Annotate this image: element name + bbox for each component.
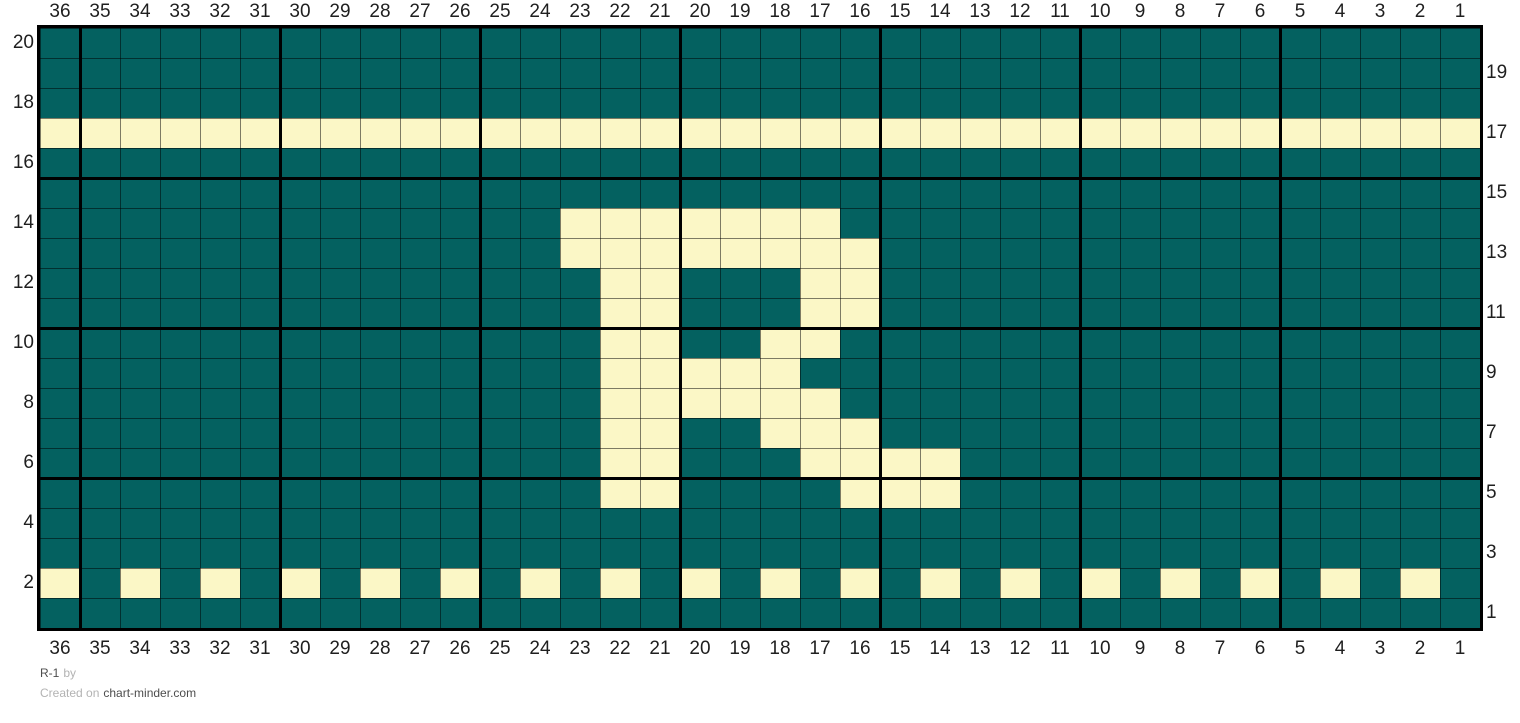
grid-cell-teal[interactable] <box>560 298 600 328</box>
grid-cell-teal[interactable] <box>680 58 720 88</box>
grid-cell-teal[interactable] <box>1400 478 1440 508</box>
grid-cell-teal[interactable] <box>240 478 280 508</box>
grid-cell-teal[interactable] <box>360 148 400 178</box>
grid-cell-teal[interactable] <box>200 508 240 538</box>
grid-cell-teal[interactable] <box>1400 268 1440 298</box>
grid-cell-teal[interactable] <box>40 538 80 568</box>
grid-cell-teal[interactable] <box>1400 208 1440 238</box>
grid-cell-teal[interactable] <box>840 28 880 58</box>
grid-cell-teal[interactable] <box>480 268 520 298</box>
grid-cell-teal[interactable] <box>1040 508 1080 538</box>
grid-cell-cream[interactable] <box>1080 568 1120 598</box>
grid-cell-teal[interactable] <box>200 268 240 298</box>
grid-cell-teal[interactable] <box>440 478 480 508</box>
grid-cell-teal[interactable] <box>1120 298 1160 328</box>
grid-cell-teal[interactable] <box>960 58 1000 88</box>
grid-cell-teal[interactable] <box>680 478 720 508</box>
grid-cell-teal[interactable] <box>1400 508 1440 538</box>
grid-cell-teal[interactable] <box>320 598 360 628</box>
grid-cell-teal[interactable] <box>560 88 600 118</box>
grid-cell-teal[interactable] <box>1040 388 1080 418</box>
grid-cell-teal[interactable] <box>320 568 360 598</box>
grid-cell-cream[interactable] <box>1040 118 1080 148</box>
grid-cell-teal[interactable] <box>1200 178 1240 208</box>
grid-cell-teal[interactable] <box>1280 388 1320 418</box>
grid-cell-teal[interactable] <box>240 418 280 448</box>
grid-cell-teal[interactable] <box>800 568 840 598</box>
grid-cell-teal[interactable] <box>1320 28 1360 58</box>
grid-cell-cream[interactable] <box>1320 118 1360 148</box>
grid-cell-teal[interactable] <box>1240 238 1280 268</box>
grid-cell-teal[interactable] <box>80 478 120 508</box>
grid-cell-teal[interactable] <box>160 388 200 418</box>
grid-cell-teal[interactable] <box>1440 328 1480 358</box>
grid-cell-cream[interactable] <box>600 388 640 418</box>
grid-cell-teal[interactable] <box>480 328 520 358</box>
grid-cell-teal[interactable] <box>1040 538 1080 568</box>
grid-cell-teal[interactable] <box>320 478 360 508</box>
grid-cell-teal[interactable] <box>880 298 920 328</box>
grid-cell-teal[interactable] <box>1200 478 1240 508</box>
grid-cell-teal[interactable] <box>480 298 520 328</box>
grid-cell-teal[interactable] <box>1120 148 1160 178</box>
grid-cell-teal[interactable] <box>1360 328 1400 358</box>
grid-cell-cream[interactable] <box>1240 118 1280 148</box>
grid-cell-teal[interactable] <box>120 328 160 358</box>
grid-cell-teal[interactable] <box>1200 148 1240 178</box>
grid-cell-cream[interactable] <box>1400 118 1440 148</box>
grid-cell-cream[interactable] <box>800 238 840 268</box>
grid-cell-teal[interactable] <box>480 538 520 568</box>
grid-cell-teal[interactable] <box>960 88 1000 118</box>
grid-cell-teal[interactable] <box>760 478 800 508</box>
grid-cell-teal[interactable] <box>240 148 280 178</box>
grid-cell-cream[interactable] <box>800 298 840 328</box>
grid-cell-teal[interactable] <box>1120 568 1160 598</box>
grid-cell-teal[interactable] <box>1000 148 1040 178</box>
grid-cell-teal[interactable] <box>400 538 440 568</box>
grid-cell-teal[interactable] <box>400 268 440 298</box>
grid-cell-teal[interactable] <box>120 238 160 268</box>
grid-cell-teal[interactable] <box>1320 148 1360 178</box>
grid-cell-teal[interactable] <box>240 598 280 628</box>
grid-cell-teal[interactable] <box>1160 418 1200 448</box>
grid-cell-teal[interactable] <box>840 58 880 88</box>
grid-cell-teal[interactable] <box>1440 88 1480 118</box>
grid-cell-teal[interactable] <box>1120 538 1160 568</box>
grid-cell-teal[interactable] <box>360 448 400 478</box>
grid-cell-teal[interactable] <box>1200 358 1240 388</box>
chart-minder-link[interactable]: chart-minder.com <box>103 686 196 700</box>
grid-cell-teal[interactable] <box>1280 568 1320 598</box>
grid-cell-cream[interactable] <box>800 118 840 148</box>
grid-cell-teal[interactable] <box>80 298 120 328</box>
grid-cell-cream[interactable] <box>680 238 720 268</box>
grid-cell-teal[interactable] <box>200 148 240 178</box>
grid-cell-cream[interactable] <box>680 118 720 148</box>
grid-cell-teal[interactable] <box>1200 448 1240 478</box>
grid-cell-teal[interactable] <box>1240 298 1280 328</box>
grid-cell-teal[interactable] <box>1040 28 1080 58</box>
grid-cell-teal[interactable] <box>160 298 200 328</box>
grid-cell-teal[interactable] <box>480 418 520 448</box>
grid-cell-teal[interactable] <box>1080 418 1120 448</box>
grid-cell-teal[interactable] <box>1160 148 1200 178</box>
grid-cell-teal[interactable] <box>120 88 160 118</box>
grid-cell-teal[interactable] <box>1360 418 1400 448</box>
grid-cell-teal[interactable] <box>1040 568 1080 598</box>
grid-cell-teal[interactable] <box>440 508 480 538</box>
grid-cell-teal[interactable] <box>1120 238 1160 268</box>
grid-cell-teal[interactable] <box>520 538 560 568</box>
grid-cell-teal[interactable] <box>1000 358 1040 388</box>
grid-cell-teal[interactable] <box>600 178 640 208</box>
grid-cell-teal[interactable] <box>1000 208 1040 238</box>
grid-cell-teal[interactable] <box>120 418 160 448</box>
grid-cell-teal[interactable] <box>360 598 400 628</box>
grid-cell-teal[interactable] <box>1000 238 1040 268</box>
grid-cell-teal[interactable] <box>560 478 600 508</box>
grid-cell-teal[interactable] <box>880 208 920 238</box>
grid-cell-cream[interactable] <box>240 118 280 148</box>
grid-cell-cream[interactable] <box>160 118 200 148</box>
grid-cell-teal[interactable] <box>320 508 360 538</box>
grid-cell-cream[interactable] <box>600 418 640 448</box>
grid-cell-teal[interactable] <box>80 58 120 88</box>
grid-cell-teal[interactable] <box>400 448 440 478</box>
grid-cell-cream[interactable] <box>320 118 360 148</box>
grid-cell-teal[interactable] <box>880 268 920 298</box>
grid-cell-teal[interactable] <box>1320 538 1360 568</box>
grid-cell-teal[interactable] <box>40 268 80 298</box>
grid-cell-teal[interactable] <box>520 148 560 178</box>
grid-cell-teal[interactable] <box>1280 538 1320 568</box>
grid-cell-cream[interactable] <box>680 208 720 238</box>
grid-cell-teal[interactable] <box>120 178 160 208</box>
grid-cell-teal[interactable] <box>960 448 1000 478</box>
grid-cell-teal[interactable] <box>1320 388 1360 418</box>
grid-cell-teal[interactable] <box>480 568 520 598</box>
grid-cell-teal[interactable] <box>240 238 280 268</box>
grid-cell-teal[interactable] <box>1040 448 1080 478</box>
grid-cell-teal[interactable] <box>680 298 720 328</box>
grid-cell-teal[interactable] <box>240 358 280 388</box>
grid-cell-teal[interactable] <box>1440 538 1480 568</box>
grid-cell-teal[interactable] <box>160 568 200 598</box>
grid-cell-teal[interactable] <box>240 208 280 238</box>
grid-cell-teal[interactable] <box>840 208 880 238</box>
grid-cell-teal[interactable] <box>360 208 400 238</box>
grid-cell-teal[interactable] <box>1160 508 1200 538</box>
grid-cell-teal[interactable] <box>320 298 360 328</box>
grid-cell-cream[interactable] <box>600 568 640 598</box>
grid-cell-teal[interactable] <box>1040 88 1080 118</box>
grid-cell-teal[interactable] <box>840 328 880 358</box>
grid-cell-teal[interactable] <box>1280 328 1320 358</box>
grid-cell-teal[interactable] <box>1000 88 1040 118</box>
grid-cell-teal[interactable] <box>800 508 840 538</box>
grid-cell-teal[interactable] <box>800 598 840 628</box>
grid-cell-teal[interactable] <box>600 88 640 118</box>
grid-cell-teal[interactable] <box>240 568 280 598</box>
grid-cell-teal[interactable] <box>1440 448 1480 478</box>
grid-cell-teal[interactable] <box>1440 178 1480 208</box>
grid-cell-teal[interactable] <box>840 148 880 178</box>
grid-cell-teal[interactable] <box>880 538 920 568</box>
grid-cell-teal[interactable] <box>960 238 1000 268</box>
grid-cell-teal[interactable] <box>880 358 920 388</box>
grid-cell-teal[interactable] <box>760 28 800 58</box>
grid-cell-teal[interactable] <box>1120 448 1160 478</box>
grid-cell-teal[interactable] <box>1080 148 1120 178</box>
grid-cell-teal[interactable] <box>1040 178 1080 208</box>
grid-cell-teal[interactable] <box>440 448 480 478</box>
grid-cell-cream[interactable] <box>280 118 320 148</box>
grid-cell-teal[interactable] <box>1440 478 1480 508</box>
grid-cell-teal[interactable] <box>920 208 960 238</box>
grid-cell-cream[interactable] <box>760 118 800 148</box>
grid-cell-teal[interactable] <box>920 178 960 208</box>
grid-cell-teal[interactable] <box>200 88 240 118</box>
grid-cell-teal[interactable] <box>360 238 400 268</box>
grid-cell-teal[interactable] <box>640 58 680 88</box>
grid-cell-teal[interactable] <box>1200 328 1240 358</box>
grid-cell-teal[interactable] <box>1160 448 1200 478</box>
grid-cell-teal[interactable] <box>160 28 200 58</box>
grid-cell-teal[interactable] <box>480 208 520 238</box>
grid-cell-teal[interactable] <box>440 418 480 448</box>
grid-cell-teal[interactable] <box>680 28 720 58</box>
grid-cell-cream[interactable] <box>640 268 680 298</box>
grid-cell-teal[interactable] <box>1440 388 1480 418</box>
grid-cell-teal[interactable] <box>1000 388 1040 418</box>
grid-cell-teal[interactable] <box>1320 58 1360 88</box>
grid-cell-teal[interactable] <box>1240 148 1280 178</box>
grid-cell-teal[interactable] <box>680 538 720 568</box>
grid-cell-cream[interactable] <box>600 268 640 298</box>
grid-cell-teal[interactable] <box>880 508 920 538</box>
grid-cell-teal[interactable] <box>520 478 560 508</box>
grid-cell-cream[interactable] <box>640 328 680 358</box>
grid-cell-cream[interactable] <box>880 448 920 478</box>
grid-cell-teal[interactable] <box>40 208 80 238</box>
grid-cell-teal[interactable] <box>960 148 1000 178</box>
grid-cell-teal[interactable] <box>400 328 440 358</box>
grid-cell-cream[interactable] <box>920 448 960 478</box>
grid-cell-teal[interactable] <box>720 148 760 178</box>
grid-cell-teal[interactable] <box>520 358 560 388</box>
grid-cell-teal[interactable] <box>1200 268 1240 298</box>
grid-cell-teal[interactable] <box>1000 268 1040 298</box>
grid-cell-teal[interactable] <box>720 568 760 598</box>
grid-cell-teal[interactable] <box>1080 88 1120 118</box>
grid-cell-teal[interactable] <box>1120 178 1160 208</box>
grid-cell-teal[interactable] <box>640 148 680 178</box>
grid-cell-teal[interactable] <box>320 88 360 118</box>
grid-cell-teal[interactable] <box>1400 148 1440 178</box>
grid-cell-teal[interactable] <box>240 88 280 118</box>
grid-cell-cream[interactable] <box>640 298 680 328</box>
grid-cell-teal[interactable] <box>160 208 200 238</box>
grid-cell-teal[interactable] <box>680 328 720 358</box>
grid-cell-teal[interactable] <box>680 598 720 628</box>
grid-cell-teal[interactable] <box>1240 208 1280 238</box>
grid-cell-teal[interactable] <box>1440 268 1480 298</box>
grid-cell-teal[interactable] <box>240 508 280 538</box>
grid-cell-teal[interactable] <box>560 358 600 388</box>
grid-cell-teal[interactable] <box>1440 358 1480 388</box>
grid-cell-teal[interactable] <box>480 58 520 88</box>
grid-cell-teal[interactable] <box>1400 88 1440 118</box>
grid-cell-teal[interactable] <box>720 28 760 58</box>
grid-cell-teal[interactable] <box>480 178 520 208</box>
grid-cell-teal[interactable] <box>600 598 640 628</box>
grid-cell-teal[interactable] <box>1160 88 1200 118</box>
grid-cell-teal[interactable] <box>320 208 360 238</box>
grid-cell-teal[interactable] <box>1280 358 1320 388</box>
grid-cell-teal[interactable] <box>840 388 880 418</box>
grid-cell-teal[interactable] <box>120 538 160 568</box>
grid-cell-teal[interactable] <box>520 598 560 628</box>
grid-cell-cream[interactable] <box>760 418 800 448</box>
grid-cell-teal[interactable] <box>960 208 1000 238</box>
grid-cell-cream[interactable] <box>480 118 520 148</box>
grid-cell-teal[interactable] <box>1240 28 1280 58</box>
grid-cell-teal[interactable] <box>360 268 400 298</box>
grid-cell-teal[interactable] <box>840 358 880 388</box>
grid-cell-teal[interactable] <box>1160 268 1200 298</box>
grid-cell-teal[interactable] <box>880 388 920 418</box>
grid-cell-cream[interactable] <box>840 448 880 478</box>
grid-cell-teal[interactable] <box>560 178 600 208</box>
grid-cell-teal[interactable] <box>640 508 680 538</box>
grid-cell-teal[interactable] <box>40 238 80 268</box>
grid-cell-teal[interactable] <box>80 208 120 238</box>
grid-cell-teal[interactable] <box>1040 238 1080 268</box>
grid-cell-cream[interactable] <box>1360 118 1400 148</box>
grid-cell-teal[interactable] <box>1440 568 1480 598</box>
grid-cell-teal[interactable] <box>80 268 120 298</box>
grid-cell-teal[interactable] <box>1400 388 1440 418</box>
grid-cell-teal[interactable] <box>40 328 80 358</box>
grid-cell-cream[interactable] <box>760 388 800 418</box>
grid-cell-teal[interactable] <box>1320 508 1360 538</box>
grid-cell-cream[interactable] <box>560 238 600 268</box>
grid-cell-teal[interactable] <box>1360 178 1400 208</box>
grid-cell-teal[interactable] <box>1360 268 1400 298</box>
grid-cell-teal[interactable] <box>40 448 80 478</box>
grid-cell-cream[interactable] <box>640 118 680 148</box>
grid-cell-cream[interactable] <box>920 118 960 148</box>
grid-cell-teal[interactable] <box>960 388 1000 418</box>
grid-cell-cream[interactable] <box>680 358 720 388</box>
grid-cell-teal[interactable] <box>1200 28 1240 58</box>
grid-cell-teal[interactable] <box>720 298 760 328</box>
grid-cell-teal[interactable] <box>520 88 560 118</box>
grid-cell-teal[interactable] <box>920 358 960 388</box>
grid-cell-teal[interactable] <box>520 238 560 268</box>
grid-cell-cream[interactable] <box>920 478 960 508</box>
grid-cell-cream[interactable] <box>800 418 840 448</box>
grid-cell-teal[interactable] <box>1120 358 1160 388</box>
grid-cell-teal[interactable] <box>1320 88 1360 118</box>
grid-cell-teal[interactable] <box>480 388 520 418</box>
grid-cell-teal[interactable] <box>1280 148 1320 178</box>
grid-cell-teal[interactable] <box>1000 298 1040 328</box>
grid-cell-teal[interactable] <box>560 58 600 88</box>
grid-cell-teal[interactable] <box>320 58 360 88</box>
grid-cell-cream[interactable] <box>1320 568 1360 598</box>
grid-cell-teal[interactable] <box>600 28 640 58</box>
grid-cell-teal[interactable] <box>1320 298 1360 328</box>
grid-cell-teal[interactable] <box>920 508 960 538</box>
grid-cell-teal[interactable] <box>320 388 360 418</box>
grid-cell-teal[interactable] <box>80 538 120 568</box>
grid-cell-teal[interactable] <box>800 478 840 508</box>
grid-cell-teal[interactable] <box>1000 598 1040 628</box>
grid-cell-teal[interactable] <box>400 388 440 418</box>
grid-cell-teal[interactable] <box>560 328 600 358</box>
grid-cell-teal[interactable] <box>760 598 800 628</box>
grid-cell-cream[interactable] <box>80 118 120 148</box>
grid-cell-teal[interactable] <box>1200 208 1240 238</box>
grid-cell-teal[interactable] <box>400 478 440 508</box>
grid-cell-teal[interactable] <box>1240 88 1280 118</box>
grid-cell-teal[interactable] <box>1240 598 1280 628</box>
grid-cell-teal[interactable] <box>1240 478 1280 508</box>
grid-cell-teal[interactable] <box>1040 268 1080 298</box>
grid-cell-teal[interactable] <box>680 418 720 448</box>
grid-cell-teal[interactable] <box>760 88 800 118</box>
grid-cell-teal[interactable] <box>1080 358 1120 388</box>
grid-cell-teal[interactable] <box>960 568 1000 598</box>
grid-cell-cream[interactable] <box>600 328 640 358</box>
grid-cell-teal[interactable] <box>1160 598 1200 628</box>
grid-cell-teal[interactable] <box>680 148 720 178</box>
grid-cell-teal[interactable] <box>280 358 320 388</box>
grid-cell-teal[interactable] <box>960 478 1000 508</box>
grid-cell-cream[interactable] <box>1280 118 1320 148</box>
grid-cell-teal[interactable] <box>1040 58 1080 88</box>
grid-cell-teal[interactable] <box>600 148 640 178</box>
grid-cell-teal[interactable] <box>1200 388 1240 418</box>
grid-cell-teal[interactable] <box>1400 178 1440 208</box>
grid-cell-teal[interactable] <box>360 58 400 88</box>
grid-cell-teal[interactable] <box>1400 298 1440 328</box>
grid-cell-cream[interactable] <box>840 238 880 268</box>
grid-cell-teal[interactable] <box>600 58 640 88</box>
grid-cell-teal[interactable] <box>560 418 600 448</box>
grid-cell-teal[interactable] <box>1040 148 1080 178</box>
grid-cell-teal[interactable] <box>1160 328 1200 358</box>
grid-cell-teal[interactable] <box>1080 598 1120 628</box>
grid-cell-cream[interactable] <box>600 478 640 508</box>
grid-cell-teal[interactable] <box>1080 538 1120 568</box>
grid-cell-teal[interactable] <box>440 358 480 388</box>
grid-cell-teal[interactable] <box>960 358 1000 388</box>
grid-cell-teal[interactable] <box>200 328 240 358</box>
grid-cell-teal[interactable] <box>240 298 280 328</box>
grid-cell-teal[interactable] <box>240 448 280 478</box>
grid-cell-teal[interactable] <box>320 418 360 448</box>
grid-cell-teal[interactable] <box>920 598 960 628</box>
grid-cell-teal[interactable] <box>1360 358 1400 388</box>
grid-cell-teal[interactable] <box>1200 598 1240 628</box>
grid-cell-teal[interactable] <box>280 388 320 418</box>
grid-cell-teal[interactable] <box>240 28 280 58</box>
grid-cell-teal[interactable] <box>880 568 920 598</box>
grid-cell-teal[interactable] <box>1400 598 1440 628</box>
